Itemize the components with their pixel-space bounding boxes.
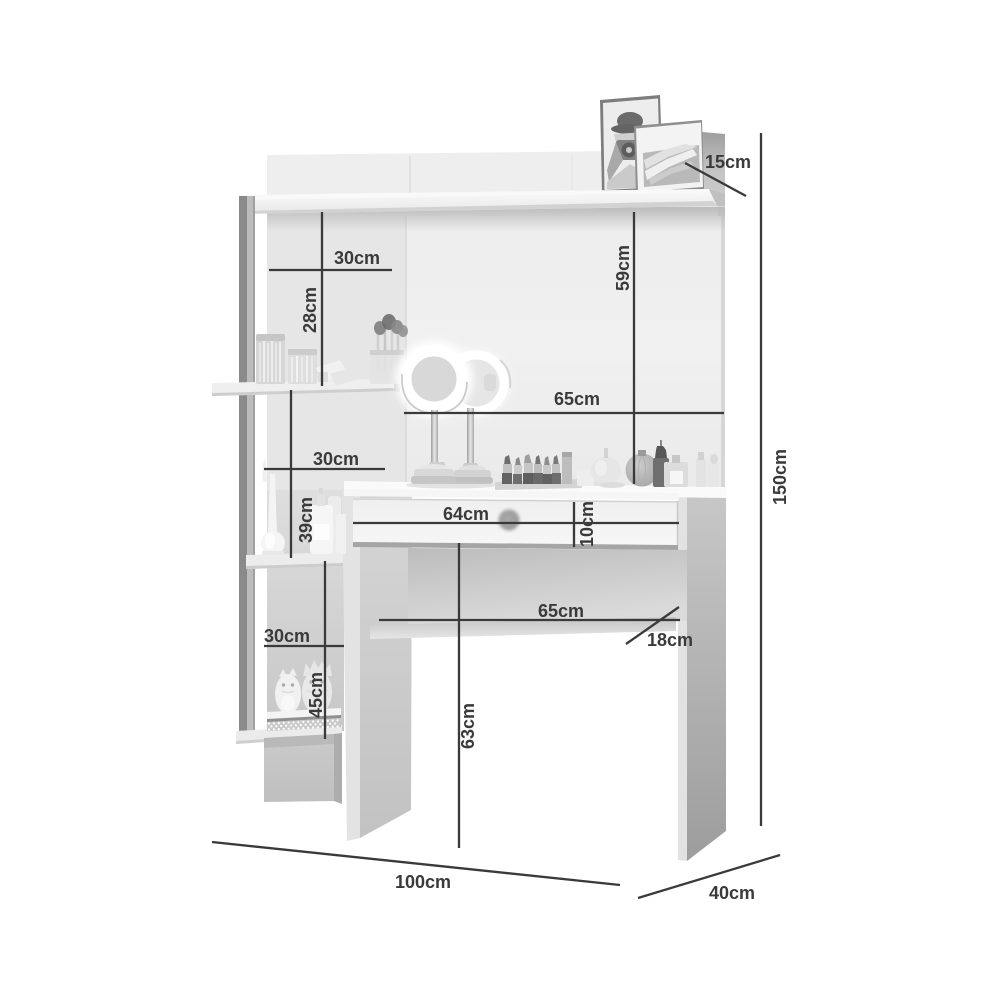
svg-text:64cm: 64cm xyxy=(443,504,489,524)
svg-text:59cm: 59cm xyxy=(613,245,633,291)
svg-text:30cm: 30cm xyxy=(264,626,310,646)
svg-text:30cm: 30cm xyxy=(334,248,380,268)
svg-text:40cm: 40cm xyxy=(709,883,755,903)
svg-text:65cm: 65cm xyxy=(554,389,600,409)
svg-text:100cm: 100cm xyxy=(395,872,451,892)
svg-text:28cm: 28cm xyxy=(300,287,320,333)
svg-text:30cm: 30cm xyxy=(313,449,359,469)
svg-text:63cm: 63cm xyxy=(458,703,478,749)
svg-text:65cm: 65cm xyxy=(538,601,584,621)
svg-text:39cm: 39cm xyxy=(296,497,316,543)
svg-text:45cm: 45cm xyxy=(306,672,326,718)
svg-text:15cm: 15cm xyxy=(705,152,751,172)
svg-text:150cm: 150cm xyxy=(770,449,790,505)
svg-text:18cm: 18cm xyxy=(647,630,693,650)
